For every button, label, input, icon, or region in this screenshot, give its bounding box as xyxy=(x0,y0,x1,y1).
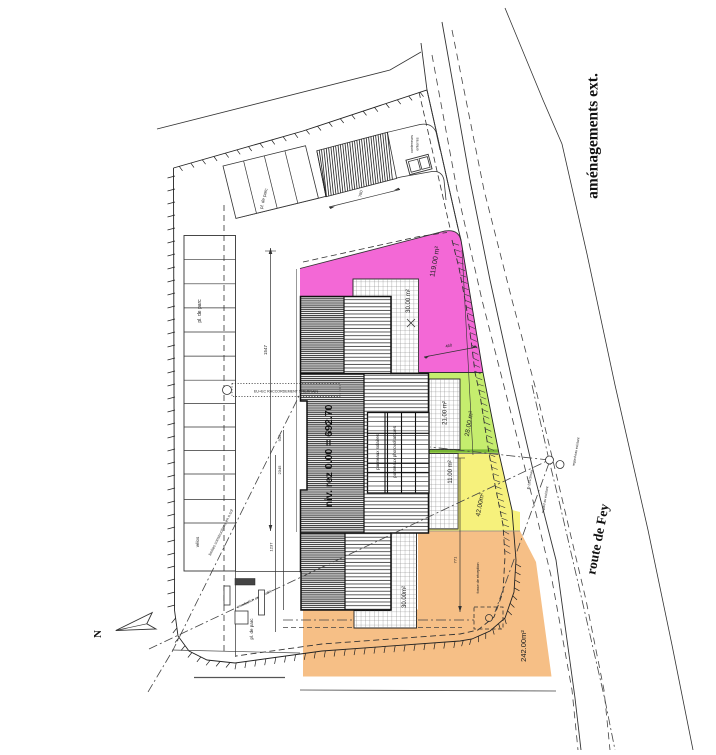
svg-text:conteneurs: conteneurs xyxy=(410,135,414,153)
svg-text:242.00m²: 242.00m² xyxy=(519,630,528,662)
svg-text:panneaux photovoltaïques: panneaux photovoltaïques xyxy=(392,425,397,477)
svg-text:N: N xyxy=(92,630,104,638)
svg-text:pl. de parc: pl. de parc xyxy=(197,299,203,323)
svg-text:11.00 m²: 11.00 m² xyxy=(448,460,454,483)
svg-text:vélos: vélos xyxy=(195,536,200,547)
svg-text:EU+EC RACCORDEMENT S/TERRAIN: EU+EC RACCORDEMENT S/TERRAIN xyxy=(254,390,318,394)
svg-text:niv. rez 0.00 = 692.70: niv. rez 0.00 = 692.70 xyxy=(323,404,335,507)
svg-text:fosse de réception: fosse de réception xyxy=(476,562,480,593)
svg-text:1547: 1547 xyxy=(263,344,268,355)
svg-text:enterrés: enterrés xyxy=(416,137,420,150)
svg-text:panneaux solaires: panneaux solaires xyxy=(375,433,380,469)
svg-text:30.00m²: 30.00m² xyxy=(402,586,408,608)
svg-text:aménagements ext.: aménagements ext. xyxy=(585,73,602,199)
svg-text:2345: 2345 xyxy=(277,465,282,475)
svg-text:30.00 m²: 30.00 m² xyxy=(406,289,412,313)
svg-text:1237: 1237 xyxy=(269,542,274,552)
svg-text:21.00 m²: 21.00 m² xyxy=(443,401,449,425)
svg-text:771: 771 xyxy=(453,556,458,563)
svg-text:pl. de parc: pl. de parc xyxy=(249,618,254,640)
